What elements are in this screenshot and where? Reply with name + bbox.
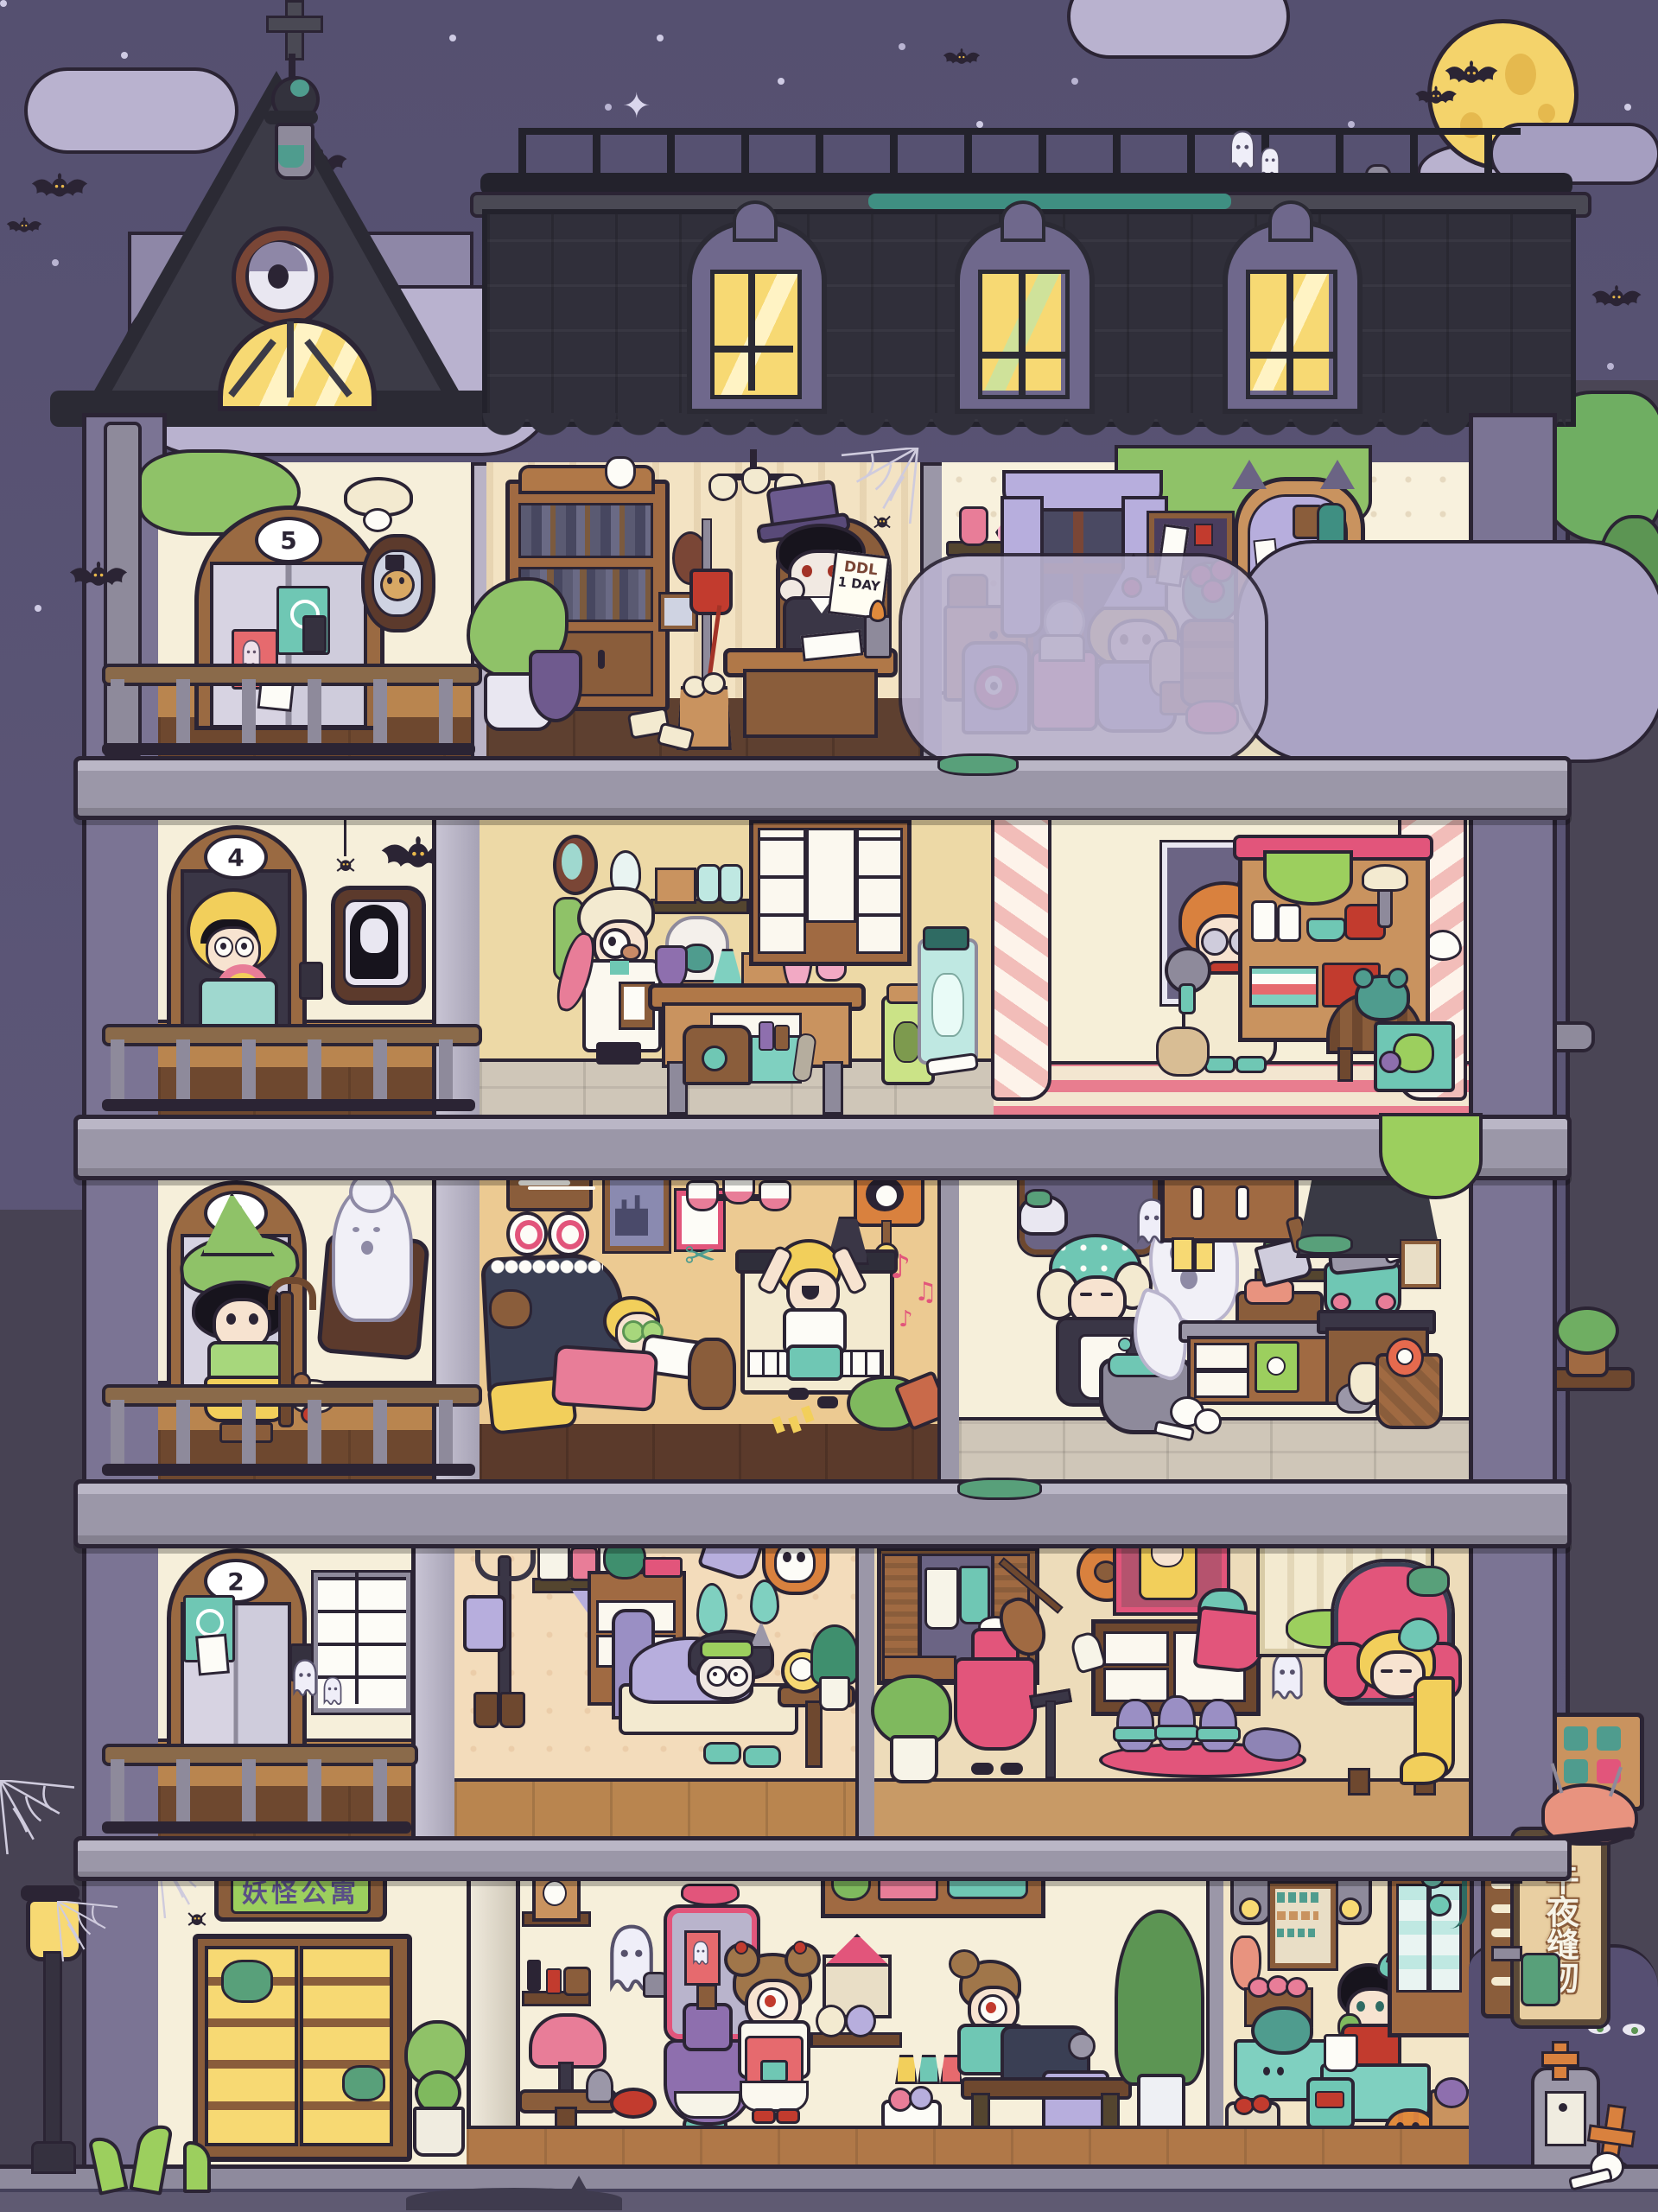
crate-bottle: [774, 1025, 790, 1051]
lamp-moss: [1025, 1189, 1052, 1208]
black-bottle: [527, 1960, 541, 1991]
teddy-pillow: [489, 1289, 532, 1329]
lamp-base: [31, 2141, 76, 2174]
mouse-tutu: [1113, 1726, 1158, 1742]
pinned-tag: [1194, 524, 1213, 546]
floor-voodoo-doll[interactable]: [1156, 1027, 1210, 1077]
skull-eye: [783, 1552, 791, 1562]
cook-closed-eye: [1101, 1293, 1113, 1296]
shoe: [752, 2108, 776, 2124]
sign-moss: [1521, 1953, 1560, 2006]
dog-bowl: [1306, 918, 1346, 942]
boots: [499, 1692, 525, 1728]
baby-bottle[interactable]: [1251, 900, 1277, 942]
cat-shadow-ear: [570, 2176, 588, 2191]
platform-plant: [1555, 1306, 1619, 1355]
music-note: ♪: [890, 1248, 911, 1286]
test-tube-rack[interactable]: [655, 868, 696, 904]
fern-vase: [819, 1676, 850, 1711]
music-note: ♫: [914, 1277, 937, 1307]
vampire-eye: [802, 565, 812, 577]
carrot-eye: [1396, 1348, 1413, 1365]
sign-bolt: [1491, 1946, 1522, 1961]
ghost-icon[interactable]: [290, 1656, 320, 1702]
slab-4-3: [73, 1115, 1572, 1180]
intercom[interactable]: [299, 962, 323, 1000]
bear-face: [380, 569, 415, 601]
bat-icon: [942, 45, 981, 71]
potion-burner[interactable]: [529, 650, 582, 722]
lamp-cap: [21, 1885, 79, 1901]
f4-number: 4: [227, 843, 244, 872]
draped-blanket: [1192, 1605, 1267, 1675]
closed-eye: [1381, 1669, 1393, 1673]
hanging-bag[interactable]: [463, 1595, 506, 1652]
radishes: [1286, 1977, 1308, 1998]
music-note: ♪: [899, 1306, 913, 1332]
roof-ridge-moss: [868, 194, 1231, 209]
bat-icon: [29, 169, 90, 206]
f3-rail-base: [102, 1464, 475, 1476]
paper-ball: [702, 672, 726, 695]
flower-lamp-center: [1094, 1560, 1118, 1583]
insomnia-eye: [707, 1666, 727, 1687]
nightstand-leg: [805, 1700, 823, 1768]
cloud-roof-right2: [899, 553, 1268, 767]
f3-railing[interactable]: [111, 1400, 468, 1465]
bear-top-hat: [385, 555, 404, 570]
closed-eye: [1400, 1669, 1412, 1673]
ghost-icon[interactable]: [1227, 128, 1258, 175]
dressing-floor: [874, 1778, 1469, 1840]
skull-eye: [797, 1552, 805, 1562]
towel-skull: [1267, 1357, 1286, 1376]
dormer-crown: [733, 200, 778, 242]
pot-mushroom: [1375, 1293, 1396, 1312]
lantern-bulb: [1239, 1897, 1261, 1920]
teddy-bear[interactable]: [688, 1338, 736, 1410]
vine-tomato: [1427, 1894, 1452, 1916]
scissors-decor: ✂: [684, 1234, 719, 1279]
intercom[interactable]: [302, 615, 327, 653]
slab-moss: [957, 1478, 1042, 1500]
f2-rail-base: [102, 1821, 411, 1834]
dancing-mouse[interactable]: [1158, 1695, 1196, 1751]
slipper: [743, 1745, 781, 1768]
seamstress-bun: [949, 1949, 980, 1979]
sewer-tentacle[interactable]: [183, 2141, 211, 2193]
dormer-crown: [1268, 200, 1313, 242]
yarn-ball: [909, 2086, 933, 2110]
tall-plant: [1115, 1910, 1204, 2086]
orb-moss: [290, 79, 309, 97]
violinist-skirt: [954, 1657, 1037, 1751]
dancing-mouse[interactable]: [1116, 1699, 1154, 1752]
teddy-ear: [1388, 968, 1408, 988]
cabinet-drawers: [758, 828, 806, 954]
street: [0, 2189, 1658, 2212]
slab-moss: [937, 753, 1019, 776]
hanging-dress-teal[interactable]: [959, 1566, 990, 1624]
pink-potion[interactable]: [959, 506, 988, 546]
baby-bottle[interactable]: [1277, 904, 1301, 942]
tombstone-eye: [1559, 2103, 1567, 2112]
pupil: [734, 1672, 738, 1676]
tomato: [1251, 2094, 1272, 2113]
goo-bubble: [1118, 1338, 1132, 1351]
rattle-handle: [1178, 983, 1196, 1014]
cyclopsgirl-skirt: [740, 2081, 809, 2112]
f4-rail-base: [102, 1099, 475, 1111]
apron-pocket: [760, 2060, 788, 2082]
crib-leg: [1337, 1047, 1353, 1082]
dress-apron-trim: [674, 2091, 741, 2119]
ghost-icon[interactable]: [321, 1675, 344, 1709]
mailbox-divider: [355, 1573, 359, 1704]
shower-head: [1362, 864, 1408, 892]
eye: [1375, 2001, 1384, 2012]
price-icon-row: [1277, 1929, 1318, 1937]
tombstone-cross-bar: [1541, 2051, 1579, 2067]
bun-bow: [734, 1941, 748, 1955]
bone-handle: [1191, 1185, 1204, 1220]
hand-mirror[interactable]: [586, 2069, 613, 2103]
floor-skull: [1194, 1408, 1222, 1434]
glyph-block: [1564, 1726, 1588, 1751]
cabinet-ear: [1320, 460, 1355, 489]
hair-curl-end: [1400, 1752, 1448, 1785]
scene: ✦ ✦ ✦ ✦ ✦ ✧ 5 DDL1 DAY: [0, 0, 1658, 2212]
cyclops-iris: [765, 1995, 776, 2007]
f4-floor-sign: 4: [204, 835, 268, 880]
bunny-specimen: [931, 973, 964, 1037]
dormer-grid: [978, 270, 1070, 399]
photo-skull: [543, 1880, 567, 1906]
counter-drawer[interactable]: [1194, 1370, 1249, 1398]
door-moss: [221, 1960, 273, 2003]
shoe: [788, 1388, 809, 1400]
bear-eye: [399, 577, 404, 584]
slab-2-1: [73, 1836, 1572, 1881]
f5-floor-sign: 5: [255, 517, 322, 563]
window-spoke: [287, 321, 294, 397]
clock-face: [874, 1184, 899, 1208]
slipper: [703, 1742, 741, 1764]
scientist-eye: [608, 937, 616, 946]
jumpkid-shorts: [786, 1344, 843, 1381]
fishbone: [518, 1180, 570, 1185]
f5-number: 5: [280, 526, 296, 555]
clipboard-sheet: [624, 987, 645, 1020]
big-teal-cabbage: [1251, 2006, 1313, 2055]
sparkle: ✦: [622, 86, 651, 126]
price-glyph-row: [1277, 1892, 1318, 1903]
incense-pot: [563, 1967, 591, 1996]
f5-rail-base: [102, 743, 475, 755]
torn-note: [195, 1634, 230, 1676]
lamp-pole: [43, 1951, 62, 2155]
sleep-mask: [700, 1640, 753, 1659]
nail-polish: [546, 1968, 562, 1994]
bench-leg: [823, 1061, 843, 1115]
spider-icon[interactable]: [334, 854, 358, 876]
hanging-dress-white[interactable]: [924, 1567, 959, 1630]
chandelier-shade-pink: [759, 1180, 791, 1211]
scientist-nose: [620, 944, 641, 961]
insomnia-eye: [727, 1666, 748, 1687]
hood-moss: [1296, 1234, 1353, 1255]
counter-drawer[interactable]: [1194, 1343, 1249, 1370]
cabinet-drawers: [856, 828, 903, 954]
swirl-plate: [816, 2005, 847, 2037]
roof-scallop-edge: [482, 413, 1566, 435]
upper-cabinets[interactable]: [1160, 1172, 1299, 1243]
talisman: [1194, 1241, 1215, 1272]
blood-iv-bag[interactable]: [689, 569, 733, 615]
certificate: [1401, 1241, 1439, 1287]
cross-finial-bar: [266, 16, 323, 33]
black-cat-shadow[interactable]: [406, 2188, 622, 2210]
glyph-block: [1597, 1726, 1621, 1751]
mustache-ornament: [681, 1884, 740, 1906]
mannequin-dress-bodice: [683, 2003, 733, 2051]
entrance-plaque-text: 妖怪公寓: [242, 1878, 359, 1909]
oval-mirror-glass: [562, 843, 582, 880]
music-stand-pole: [1045, 1700, 1056, 1778]
eye: [249, 1313, 258, 1325]
cabinet-ear: [1232, 460, 1267, 489]
glyph-block: [1564, 1759, 1588, 1783]
f2-railing[interactable]: [111, 1759, 404, 1823]
mary-jane-shoe: [1001, 1763, 1023, 1775]
mouse-tutu: [1196, 1726, 1241, 1742]
purple-cabbage: [1434, 2077, 1469, 2108]
mannequin-neck: [696, 1984, 717, 2010]
dormer-grid: [710, 270, 793, 391]
slab-5-4: [73, 756, 1572, 820]
plate-donut: [515, 1220, 543, 1249]
cloud-roof-right: [1236, 540, 1658, 763]
spider-web-icon: [0, 1780, 74, 1854]
pink-striped-curtain-left: [991, 804, 1051, 1101]
cabinet-door: [806, 828, 856, 923]
f2-number: 2: [227, 1567, 244, 1596]
coat-collar: [610, 961, 629, 975]
armchair-moss: [1407, 1566, 1450, 1597]
folded-clothes: [1249, 966, 1318, 1007]
bone-handle: [1236, 1185, 1249, 1220]
chest-skull-badge: [702, 1046, 727, 1071]
lantern-bulb: [1339, 1897, 1362, 1920]
cloud: [1067, 0, 1290, 59]
dressing-plant-pot: [890, 1735, 938, 1783]
cook-closed-eye: [1080, 1293, 1092, 1296]
f4-railing[interactable]: [111, 1039, 468, 1102]
chandelier-shade-pink: [686, 1180, 719, 1211]
dancing-mouse[interactable]: [1199, 1699, 1237, 1752]
book-shelf-top: [518, 503, 653, 558]
dresser-drawer[interactable]: [1103, 1631, 1169, 1666]
dresser-drawer[interactable]: [1103, 1668, 1169, 1702]
poster-glyph: [196, 1609, 224, 1637]
moon-crater: [1505, 54, 1536, 95]
pupil: [241, 943, 247, 950]
flask-teal[interactable]: [719, 864, 743, 904]
bag-label: [1315, 2091, 1344, 2108]
spider-icon[interactable]: [185, 1908, 209, 1930]
grandma-eye: [373, 1227, 380, 1232]
cabinet-handle: [598, 650, 605, 669]
machine-wheel: [1068, 2032, 1096, 2060]
teddy-ear: [1353, 968, 1374, 988]
mouse-tutu: [1154, 1725, 1199, 1740]
pupil: [220, 943, 226, 950]
talisman: [1172, 1237, 1194, 1272]
ghost-girl-face: [360, 918, 388, 953]
fringe-lamp[interactable]: [529, 2013, 607, 2069]
pot-mushroom: [1331, 1293, 1351, 1312]
chandelier-shade: [708, 474, 738, 501]
shoe: [1236, 1056, 1267, 1073]
eye-ornament-pupil: [268, 264, 289, 289]
door-right[interactable]: [300, 1946, 393, 2146]
moon-crater: [1538, 104, 1555, 123]
eye: [1356, 2001, 1365, 2012]
ghost-icon: [691, 1939, 710, 1968]
slab-3-2: [73, 1479, 1572, 1548]
pupil: [713, 1672, 717, 1676]
dizzy-glasses: [1201, 928, 1229, 956]
grandma-eye: [353, 1227, 359, 1232]
armchair-leg: [1348, 1768, 1370, 1796]
cloud: [24, 67, 238, 154]
tooth-ornament[interactable]: [605, 456, 636, 489]
dormer-grid: [1246, 270, 1337, 399]
bat-icon: [1413, 83, 1458, 111]
hair-bow: [1398, 1618, 1439, 1652]
shoe: [776, 2108, 800, 2124]
price-icon-row: [1277, 1911, 1318, 1920]
cyclops-iris: [986, 2002, 996, 2013]
grandma-mouth: [361, 1241, 373, 1255]
bear-eye: [387, 577, 392, 584]
flask-teal[interactable]: [696, 864, 721, 904]
bat-icon: [5, 214, 43, 238]
cloth-eye: [1263, 2067, 1270, 2075]
swirl-plate: [845, 2005, 876, 2037]
cloth-eye: [1277, 2067, 1284, 2075]
mary-jane-shoe: [971, 1763, 994, 1775]
bat-icon[interactable]: [67, 556, 130, 596]
door-moss: [342, 2065, 385, 2101]
bun-bow: [793, 1941, 807, 1955]
mouse-ghost-icon: [1268, 1649, 1306, 1706]
sofa-lace: [491, 1260, 603, 1274]
red-stool[interactable]: [610, 2088, 657, 2119]
living-floor: [480, 1424, 937, 1479]
chandelier-shade: [741, 467, 771, 494]
lamp-glow: [363, 508, 392, 532]
plate-donut: [556, 1220, 584, 1249]
spider-icon: [871, 512, 893, 532]
sprout-bucket: [1324, 2034, 1358, 2072]
bush-pupil: [1597, 2025, 1604, 2032]
crate-bottle: [759, 1021, 774, 1051]
berry-tray: [643, 1557, 683, 1578]
bat-icon: [1590, 282, 1643, 315]
stars: [0, 0, 7, 7]
scientist-legs: [596, 1042, 641, 1065]
f2-bedroom-floor: [454, 1778, 855, 1840]
shoe: [817, 1396, 838, 1408]
desk-panel: [743, 669, 878, 738]
f5-railing[interactable]: [111, 679, 468, 747]
dormer-crown: [1001, 200, 1045, 242]
toy-ball: [1379, 1051, 1401, 1073]
spider-web-icon: [57, 1901, 118, 1961]
jar-lid-dark: [923, 926, 969, 950]
tombstone-panel: [1545, 2091, 1586, 2146]
topiary-pot: [413, 2107, 465, 2157]
pink-blanket: [551, 1344, 659, 1412]
eye: [226, 1313, 236, 1325]
staff-hook: [268, 1277, 316, 1310]
boots: [473, 1692, 499, 1728]
finial-cup-moss: [278, 145, 304, 168]
